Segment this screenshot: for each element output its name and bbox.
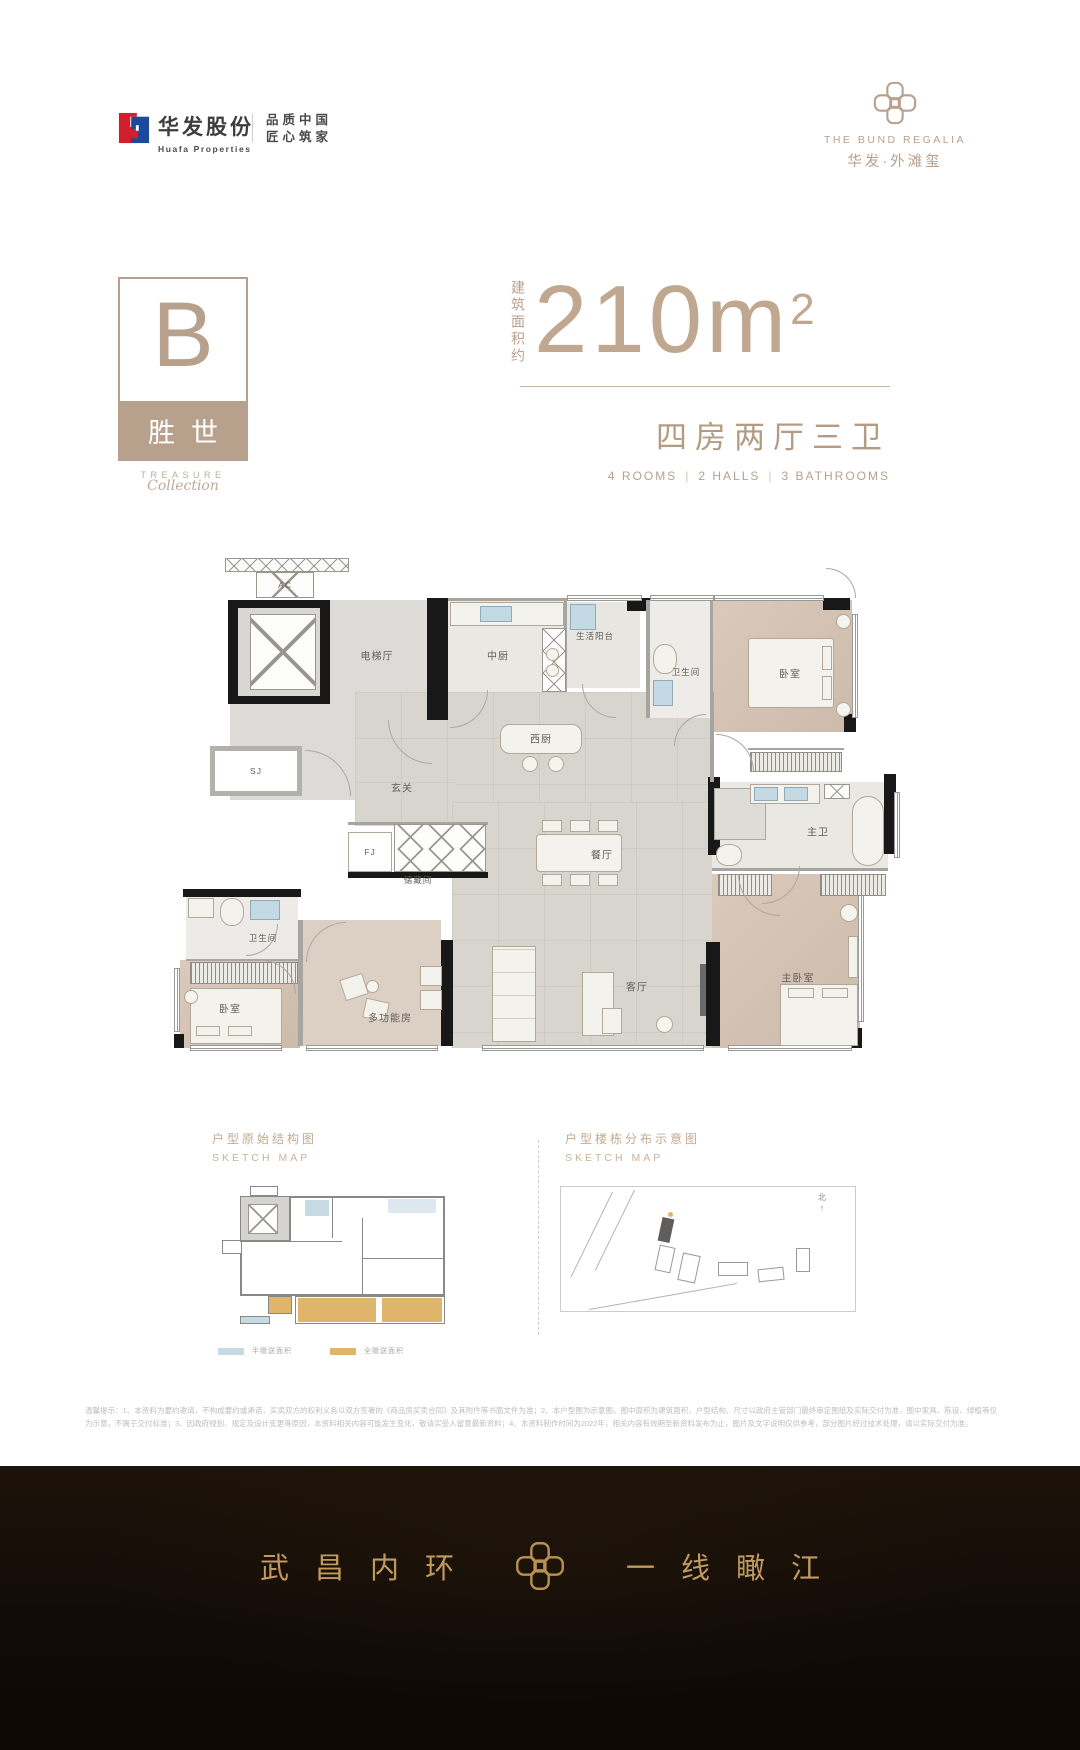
stove-burner	[546, 664, 559, 677]
nightstand-lamp	[836, 614, 851, 629]
footer-tagline: 武昌内环 一线瞰江	[0, 1540, 1080, 1592]
huafa-name-cn: 华发股份	[158, 111, 254, 141]
room-label-bath-top: 卫生间	[672, 666, 701, 678]
sketch-gold-area	[268, 1296, 292, 1314]
area-prefix: 建筑面积约	[508, 280, 528, 365]
sketch-right-title: 户型楼栋分布示意图 SKETCH MAP	[565, 1130, 700, 1164]
footer-right-text: 一线瞰江	[600, 1545, 846, 1587]
side-table	[602, 1008, 622, 1034]
layout-halls: 2 HALLS	[698, 469, 760, 483]
huafa-slogan: 品质中国 匠心筑家	[266, 112, 332, 146]
floor-lamp	[656, 1016, 673, 1033]
sink	[653, 680, 673, 706]
sketch-left-map	[210, 1178, 480, 1338]
slogan-line2: 匠心筑家	[266, 129, 332, 146]
wall	[427, 598, 448, 720]
sink	[250, 900, 280, 920]
dresser	[848, 936, 858, 978]
sketch-sj	[222, 1240, 242, 1254]
window	[714, 595, 824, 601]
wall	[712, 868, 888, 871]
wall	[183, 889, 301, 897]
legend-swatch-gold	[330, 1348, 356, 1355]
room-label-living: 客厅	[626, 979, 648, 994]
room-label-bedroom-top: 卧室	[779, 666, 801, 681]
brand-name-en: THE BUND REGALIA	[800, 134, 990, 146]
bath-cabinet	[824, 784, 850, 799]
vanity	[188, 898, 214, 918]
chair	[840, 904, 858, 922]
window	[650, 595, 714, 601]
sketch-right-title-cn: 户型楼栋分布示意图	[565, 1130, 700, 1147]
tv	[700, 964, 706, 1016]
stool	[548, 756, 564, 772]
kitchen-sink	[480, 606, 512, 622]
sj-label: SJ	[250, 766, 262, 776]
sink	[784, 787, 808, 801]
wardrobe	[750, 752, 842, 772]
elevator-car	[250, 614, 316, 690]
north-arrow-icon: ↑	[818, 1203, 826, 1213]
sketch-divider	[538, 1140, 539, 1335]
sketch-left-title-en: SKETCH MAP	[212, 1152, 317, 1164]
pillow	[822, 646, 832, 670]
footer-left-text: 武昌内环	[234, 1545, 480, 1587]
huafa-name: 华发股份 Huafa Properties	[158, 111, 254, 154]
map-building	[796, 1248, 810, 1272]
side-table	[366, 980, 379, 993]
toilet	[220, 898, 244, 926]
pillow	[822, 988, 848, 998]
map-building	[757, 1267, 784, 1283]
area-value: 210m2	[534, 272, 815, 358]
wall	[186, 959, 298, 961]
pillow	[228, 1026, 252, 1036]
window	[306, 1045, 438, 1051]
floorplan: AC SJ FJ	[150, 556, 902, 1056]
disclaimer-text: 温馨提示：1、本资料为要约邀请，不构成要约或承诺，买卖双方的权利义务以双方签署的…	[85, 1405, 997, 1431]
layout-cn: 四房两厅三卫	[490, 412, 890, 457]
chair	[420, 966, 442, 986]
sketch-right-title-en: SKETCH MAP	[565, 1152, 700, 1164]
sketch-left-title-cn: 户型原始结构图	[212, 1130, 317, 1147]
wall	[298, 920, 303, 1046]
balcony-hatch	[225, 558, 349, 572]
window	[852, 614, 858, 718]
room-label-bath-bl2: 卫生间	[249, 932, 278, 944]
area-headline: 建筑面积约 210m2	[508, 272, 815, 365]
chair	[570, 874, 590, 886]
wall	[646, 600, 650, 718]
unit-letter: B	[120, 279, 246, 391]
sketch-left-title: 户型原始结构图 SKETCH MAP	[212, 1130, 317, 1164]
pillow	[822, 676, 832, 700]
chair	[542, 874, 562, 886]
legend-item-1: 半赠送面积	[218, 1346, 292, 1356]
pillow	[196, 1026, 220, 1036]
huafa-name-en: Huafa Properties	[158, 144, 254, 154]
room-label-elevator-hall: 电梯厅	[361, 648, 394, 663]
area-number: 210m	[534, 266, 790, 373]
window	[482, 1045, 704, 1051]
room-label-master-bedroom: 主卧室	[782, 970, 815, 985]
unit-series: TREASURE Collection	[108, 470, 258, 494]
layout-baths: 3 BATHROOMS	[782, 469, 890, 483]
sketch-elevator-car	[248, 1204, 278, 1234]
window	[190, 1045, 282, 1051]
north-label: 北	[818, 1192, 826, 1203]
map-building	[718, 1262, 748, 1276]
bund-regalia-emblem-icon	[872, 80, 918, 126]
sofa	[492, 946, 536, 1042]
room-label-dining: 餐厅	[591, 847, 613, 862]
room-label-master-bath: 主卫	[807, 824, 829, 839]
door-swing	[826, 568, 856, 598]
ac-label: AC	[278, 580, 292, 590]
sketch-blue-area	[240, 1316, 270, 1324]
chair	[420, 990, 442, 1010]
legend-label: 全赠送面积	[364, 1346, 404, 1356]
layout-en: 4 ROOMS|2 HALLS|3 BATHROOMS	[490, 469, 890, 483]
stool	[522, 756, 538, 772]
chair	[542, 820, 562, 832]
wardrobe	[820, 874, 886, 896]
poster: 华发股份 Huafa Properties 品质中国 匠心筑家 THE BUND…	[0, 0, 1080, 1750]
sketch-wall	[332, 1196, 333, 1238]
bathtub	[852, 796, 884, 866]
wall	[174, 1034, 184, 1048]
legend-label: 半赠送面积	[252, 1346, 292, 1356]
sink	[754, 787, 778, 801]
pillow	[788, 988, 814, 998]
footer-band: 武昌内环 一线瞰江	[0, 1466, 1080, 1750]
chair	[598, 820, 618, 832]
nightstand-lamp	[836, 702, 851, 717]
series-collection: Collection	[108, 478, 258, 494]
wall	[710, 692, 714, 782]
sketch-gold-area	[382, 1298, 442, 1322]
headline-rule	[520, 386, 890, 387]
layout-block: 四房两厅三卫 4 ROOMS|2 HALLS|3 BATHROOMS	[490, 412, 890, 483]
fj-label: FJ	[364, 847, 375, 857]
window	[858, 892, 864, 1022]
room-label-foyer: 玄关	[391, 780, 413, 795]
window	[174, 968, 180, 1032]
legend-swatch-blue	[218, 1348, 244, 1355]
chair	[570, 820, 590, 832]
window	[567, 595, 642, 601]
map-north: 北 ↑	[818, 1192, 826, 1213]
room-label-w-kitchen: 西厨	[530, 731, 552, 746]
toilet	[716, 844, 742, 866]
area-superscript: 2	[790, 285, 814, 334]
separator: |	[768, 469, 773, 483]
slogan-line1: 品质中国	[266, 112, 332, 129]
huafa-logo-icon	[118, 112, 150, 144]
unit-name: 胜世	[120, 401, 246, 459]
sketch-wall	[362, 1218, 363, 1296]
header-divider	[252, 113, 253, 143]
storage-cabinets	[394, 824, 486, 872]
legend-item-2: 全赠送面积	[330, 1346, 404, 1356]
layout-rooms: 4 ROOMS	[608, 469, 677, 483]
sketch-right-map: 北 ↑	[560, 1178, 860, 1318]
wall	[441, 940, 453, 1046]
footer-emblem-icon	[514, 1540, 566, 1592]
room-label-multi: 多功能房	[368, 1010, 412, 1025]
sketch-wall	[290, 1196, 291, 1241]
sketch-wall	[240, 1241, 342, 1242]
sketch-blue-area	[388, 1199, 436, 1213]
room-label-cn-kitchen: 中厨	[487, 648, 509, 663]
brand-block: THE BUND REGALIA 华发·外滩玺	[800, 80, 990, 171]
sketch-ac	[250, 1186, 278, 1196]
door-swing	[716, 734, 754, 772]
washer	[570, 604, 596, 630]
window	[894, 792, 900, 858]
room-label-bedroom-bl: 卧室	[219, 1001, 241, 1016]
separator: |	[685, 469, 690, 483]
nightstand-lamp	[184, 990, 198, 1004]
map-marker	[668, 1212, 673, 1217]
sketch-blue-area	[305, 1200, 329, 1216]
wall	[748, 748, 844, 750]
sketch-wall	[362, 1258, 445, 1259]
unit-badge: B 胜世	[118, 277, 248, 461]
wall	[706, 942, 720, 1046]
chair	[598, 874, 618, 886]
brand-name-cn: 华发·外滩玺	[800, 150, 990, 171]
stove-burner	[546, 648, 559, 661]
room-label-balcony: 生活阳台	[576, 630, 614, 642]
room-label-storage: 储藏间	[404, 874, 433, 886]
sketch-gold-area	[298, 1298, 376, 1322]
wall	[823, 598, 850, 610]
